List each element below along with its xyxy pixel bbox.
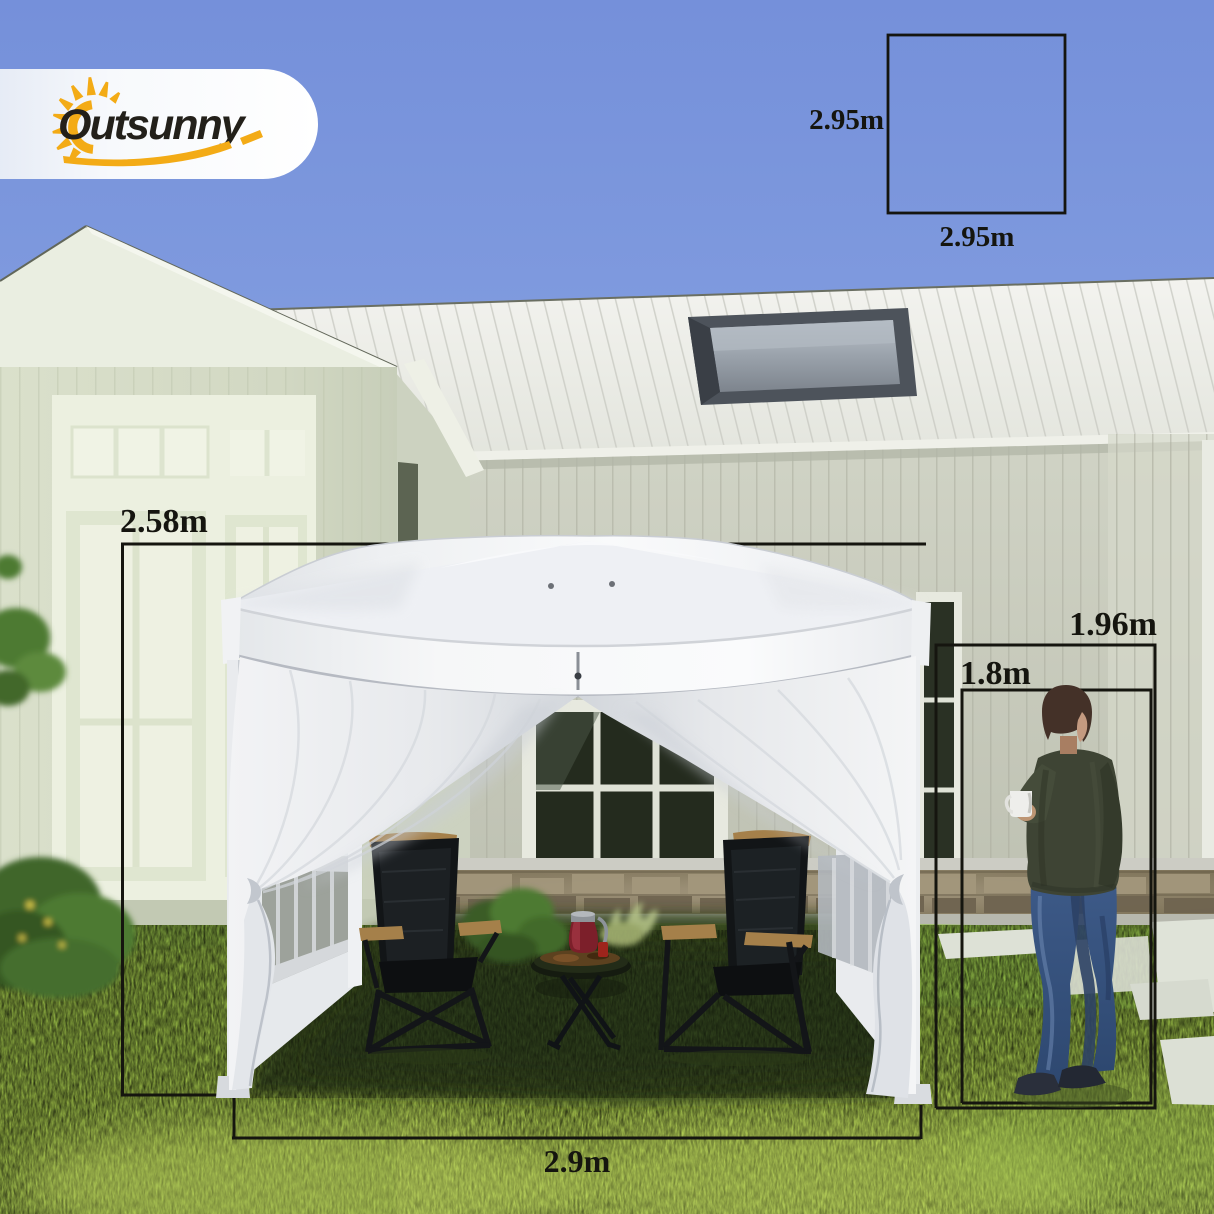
svg-text:Outsunny: Outsunny: [58, 101, 247, 149]
svg-text:1.8m: 1.8m: [960, 655, 1031, 692]
svg-text:2.58m: 2.58m: [120, 503, 208, 540]
svg-text:2.95m: 2.95m: [809, 104, 884, 136]
svg-text:2.95m: 2.95m: [940, 221, 1015, 253]
svg-text:2.9m: 2.9m: [544, 1143, 611, 1179]
svg-text:1.96m: 1.96m: [1069, 606, 1157, 643]
